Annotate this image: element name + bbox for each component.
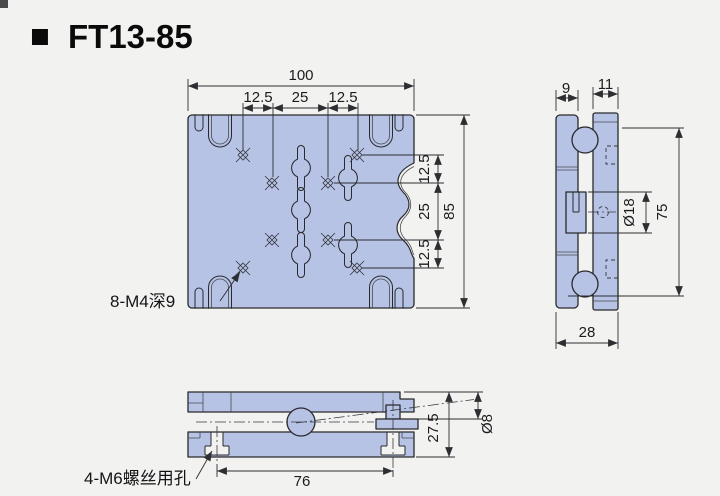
engineering-drawing: ■ FT13-85	[0, 0, 720, 496]
dim-text-assembly-height: 27.5	[425, 413, 442, 442]
dim-text-top-chain-1: 12.5	[243, 89, 272, 106]
dim-text-total-thickness: 28	[579, 324, 596, 341]
dim-text-right-chain-1: 12.5	[416, 154, 433, 183]
dim-text-shaft-diameter: Ø8	[479, 414, 496, 434]
thread-label: 8-M4深9	[110, 292, 175, 311]
thread-mark	[236, 148, 250, 162]
page-corner-mark	[0, 0, 8, 8]
thread-mark	[236, 261, 250, 275]
front-view: 100 12.5 25 12.5 12.5 25 12.5 85 8-M4深9	[110, 67, 470, 311]
page-title: FT13-85	[68, 18, 193, 55]
dim-text-top-chain-3: 12.5	[328, 89, 357, 106]
thread-mark	[350, 261, 364, 275]
thread-mark	[321, 176, 335, 190]
title-block: ■ FT13-85	[30, 17, 193, 55]
title-bullet-icon: ■	[30, 17, 50, 54]
dim-text-top-chain-2: 25	[292, 89, 309, 106]
dim-text-right-chain-3: 12.5	[416, 239, 433, 268]
dim-text-back-thickness: 11	[598, 76, 614, 93]
dim-text-height: 85	[441, 203, 458, 220]
bottom-clamp-knob	[572, 271, 598, 297]
dim-text-right-chain-2: 25	[416, 203, 433, 220]
dim-text-vertical-span: 75	[654, 204, 671, 221]
bottom-view: 27.5 Ø8 76 4-M6螺丝用孔	[84, 392, 496, 490]
dim-text-knob-diameter: Ø18	[621, 198, 638, 226]
dim-text-front-thickness: 9	[562, 80, 570, 97]
thread-mark	[265, 176, 279, 190]
adjust-screw-flange	[376, 419, 418, 429]
dim-text-hole-spacing: 76	[294, 473, 311, 490]
thread-mark	[265, 233, 279, 247]
thread-mark	[321, 233, 335, 247]
screw-hole-label: 4-M6螺丝用孔	[84, 469, 191, 488]
dim-text-width: 100	[288, 67, 313, 84]
top-clamp-knob	[572, 127, 598, 153]
thread-mark	[350, 148, 364, 162]
side-view: 9 11 Ø18 75 28	[556, 76, 684, 349]
